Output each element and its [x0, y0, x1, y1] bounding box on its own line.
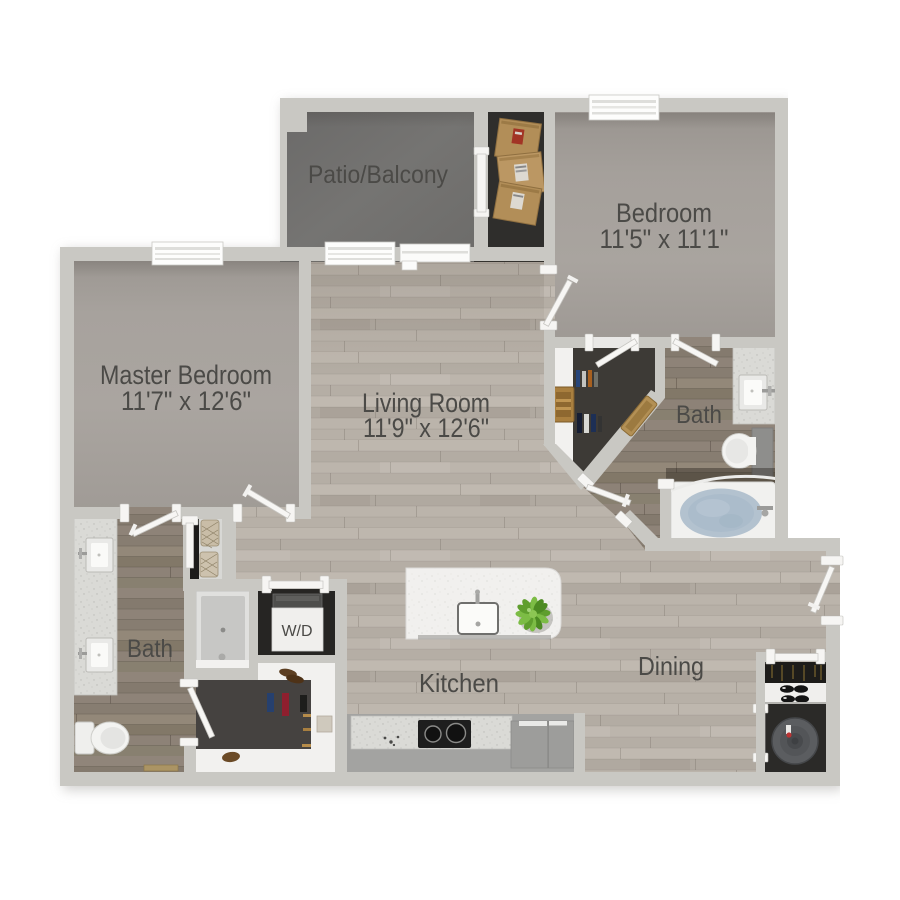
svg-text:Bath: Bath — [127, 635, 173, 663]
svg-text:Bath: Bath — [676, 401, 722, 429]
svg-text:11'5" x 11'1": 11'5" x 11'1" — [600, 224, 729, 254]
svg-text:Dining: Dining — [638, 651, 704, 681]
svg-text:W/D: W/D — [281, 623, 312, 640]
svg-text:11'7" x 12'6": 11'7" x 12'6" — [121, 386, 251, 416]
svg-text:Patio/Balcony: Patio/Balcony — [308, 161, 448, 189]
svg-text:11'9" x 12'6": 11'9" x 12'6" — [363, 413, 489, 443]
svg-text:Kitchen: Kitchen — [419, 668, 499, 698]
